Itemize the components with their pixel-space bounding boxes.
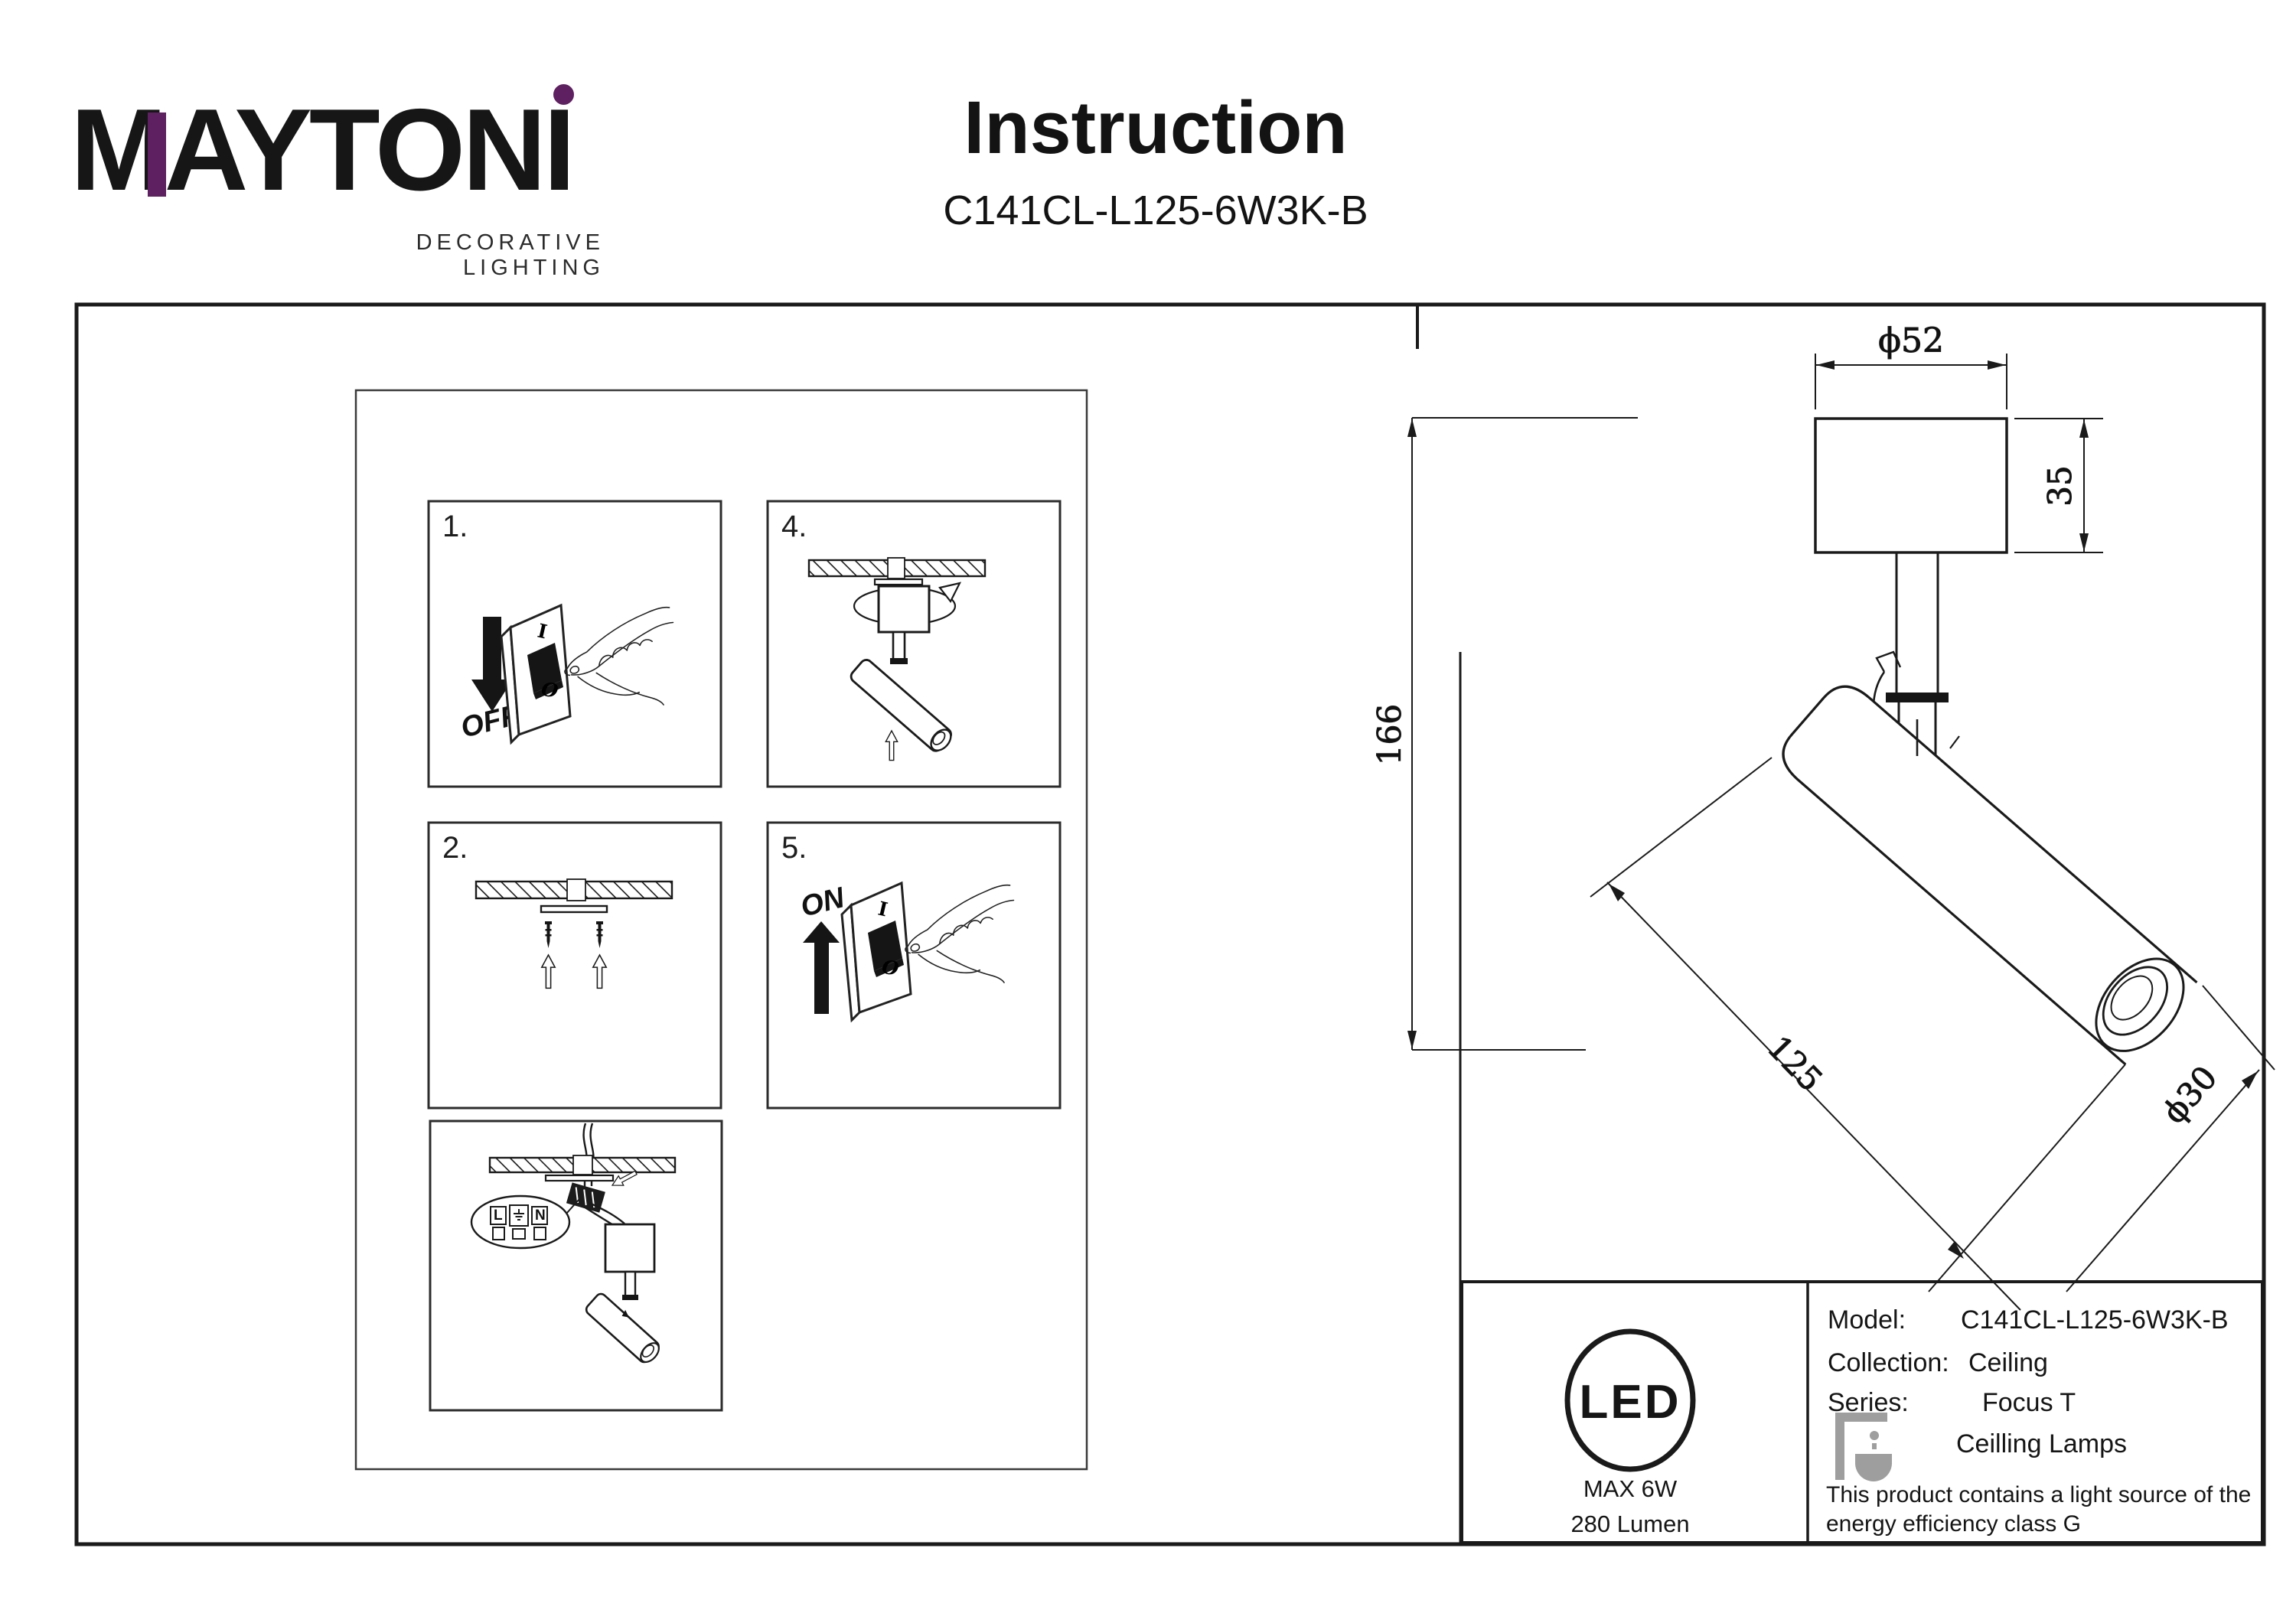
dim-label-canopy-height: 35 — [2041, 465, 2079, 506]
series-value: Focus T — [1982, 1388, 2076, 1418]
dim-canopy-diameter — [1815, 354, 2007, 409]
insert-arrow-icon — [593, 955, 606, 988]
led-badge-text: LED — [1580, 1376, 1681, 1429]
stem-joint — [1886, 693, 1949, 702]
spot-tube — [584, 1289, 665, 1366]
mounting-plate — [541, 906, 607, 912]
step-2-number: 2. — [442, 831, 468, 865]
brand-tagline: DECORATIVE LIGHTING — [298, 230, 605, 281]
push-up-arrow-icon — [885, 731, 897, 761]
light-switch — [842, 883, 911, 1020]
screw-icon — [596, 921, 603, 948]
canopy — [605, 1224, 654, 1272]
panel-5-border — [768, 823, 1060, 1108]
step-4-number: 4. — [781, 510, 807, 544]
luminous-flux: 280 Lumen — [1546, 1511, 1714, 1538]
model-label: Model: — [1828, 1305, 1906, 1335]
technical-drawing: ϕ52 35 166 — [1371, 321, 2275, 1310]
dim-label-body-length: 125 — [1760, 1028, 1830, 1099]
instruction-sheet: LED OFF I O — [0, 0, 2296, 1623]
dim-body-length — [1590, 758, 2125, 1310]
stem — [625, 1272, 635, 1297]
model-value: C141CL-L125-6W3K-B — [1961, 1305, 2229, 1335]
logo-i-dot-icon — [553, 84, 574, 105]
terminal-neutral-label: N — [535, 1207, 546, 1224]
step5-illustration: ON I O — [797, 882, 1032, 1020]
step2-illustration — [476, 879, 672, 988]
step-1-number: 1. — [442, 510, 468, 544]
collection-value: Ceiling — [1968, 1348, 2048, 1378]
rotation-arrow-icon — [940, 583, 960, 601]
canopy — [879, 586, 929, 632]
step1-illustration: OFF I O — [458, 605, 692, 745]
insert-arrow-icon — [542, 955, 555, 988]
dim-label-body-diameter: ϕ30 — [2155, 1058, 2225, 1130]
category-value: Ceilling Lamps — [1956, 1429, 2127, 1459]
panel-1-border — [429, 501, 721, 787]
step3-illustration — [471, 1123, 675, 1366]
tube-outline — [1772, 675, 2202, 1069]
max-power: MAX 6W — [1546, 1475, 1714, 1503]
spot-tube — [849, 657, 956, 755]
light-switch — [501, 605, 570, 742]
page-model-number: C141CL-L125-6W3K-B — [842, 188, 1469, 233]
canopy-outline — [1815, 419, 2007, 552]
ceiling-lamp-icon — [1835, 1413, 1892, 1481]
dim-total-height — [1407, 418, 1638, 1050]
terminal-live-label: L — [494, 1207, 503, 1224]
mounting-plate — [546, 1175, 613, 1181]
efficiency-note-line2: energy efficiency class G — [1826, 1511, 2081, 1538]
logo-accent-stroke — [148, 112, 166, 197]
brand-logo: MAYTONI — [70, 92, 572, 208]
hand-pressing-switch — [556, 606, 692, 726]
dim-label-canopy-diameter: ϕ52 — [1878, 321, 1944, 360]
step-5-number: 5. — [781, 831, 807, 865]
panel-4-border — [768, 501, 1060, 787]
collection-label: Collection: — [1828, 1348, 1949, 1378]
series-label: Series: — [1828, 1388, 1909, 1418]
page-title: Instruction — [842, 90, 1469, 165]
dim-label-total-height: 166 — [1371, 704, 1408, 765]
stem — [893, 632, 905, 661]
screw-icon — [545, 921, 552, 948]
hand-pressing-switch — [896, 884, 1032, 1004]
up-arrow-icon — [803, 921, 840, 1014]
step4-illustration — [809, 558, 985, 761]
panel-2-border — [429, 823, 721, 1108]
mounting-plate — [875, 579, 922, 585]
efficiency-note-line1: This product contains a light source of … — [1826, 1481, 2251, 1509]
